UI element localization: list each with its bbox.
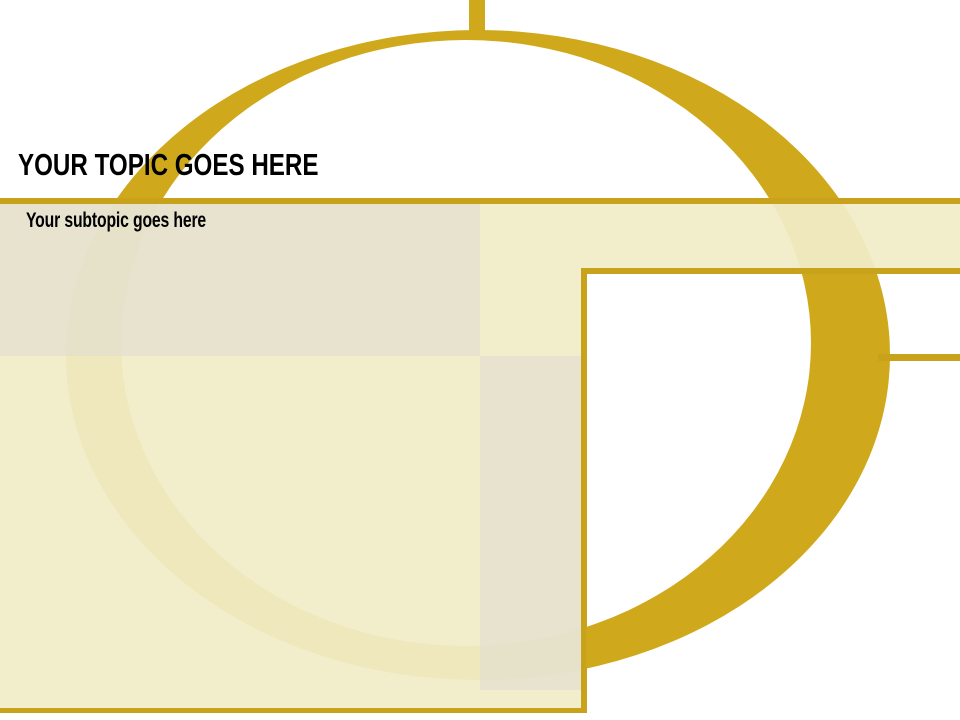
left-block-bottom-rule <box>0 708 590 713</box>
top-accent-bar <box>469 0 485 34</box>
slide-title: YOUR TOPIC GOES HERE <box>18 149 319 180</box>
gray-overlay-mid-right <box>480 356 586 690</box>
presentation-slide: YOUR TOPIC GOES HERE Your subtopic goes … <box>0 0 960 720</box>
slide-subtitle: Your subtopic goes here <box>26 210 206 231</box>
right-horizontal-rule <box>878 354 960 361</box>
white-box-top-border <box>581 268 960 274</box>
slide-background-graphic <box>0 0 960 720</box>
subtitle-band-top-rule <box>0 198 960 204</box>
